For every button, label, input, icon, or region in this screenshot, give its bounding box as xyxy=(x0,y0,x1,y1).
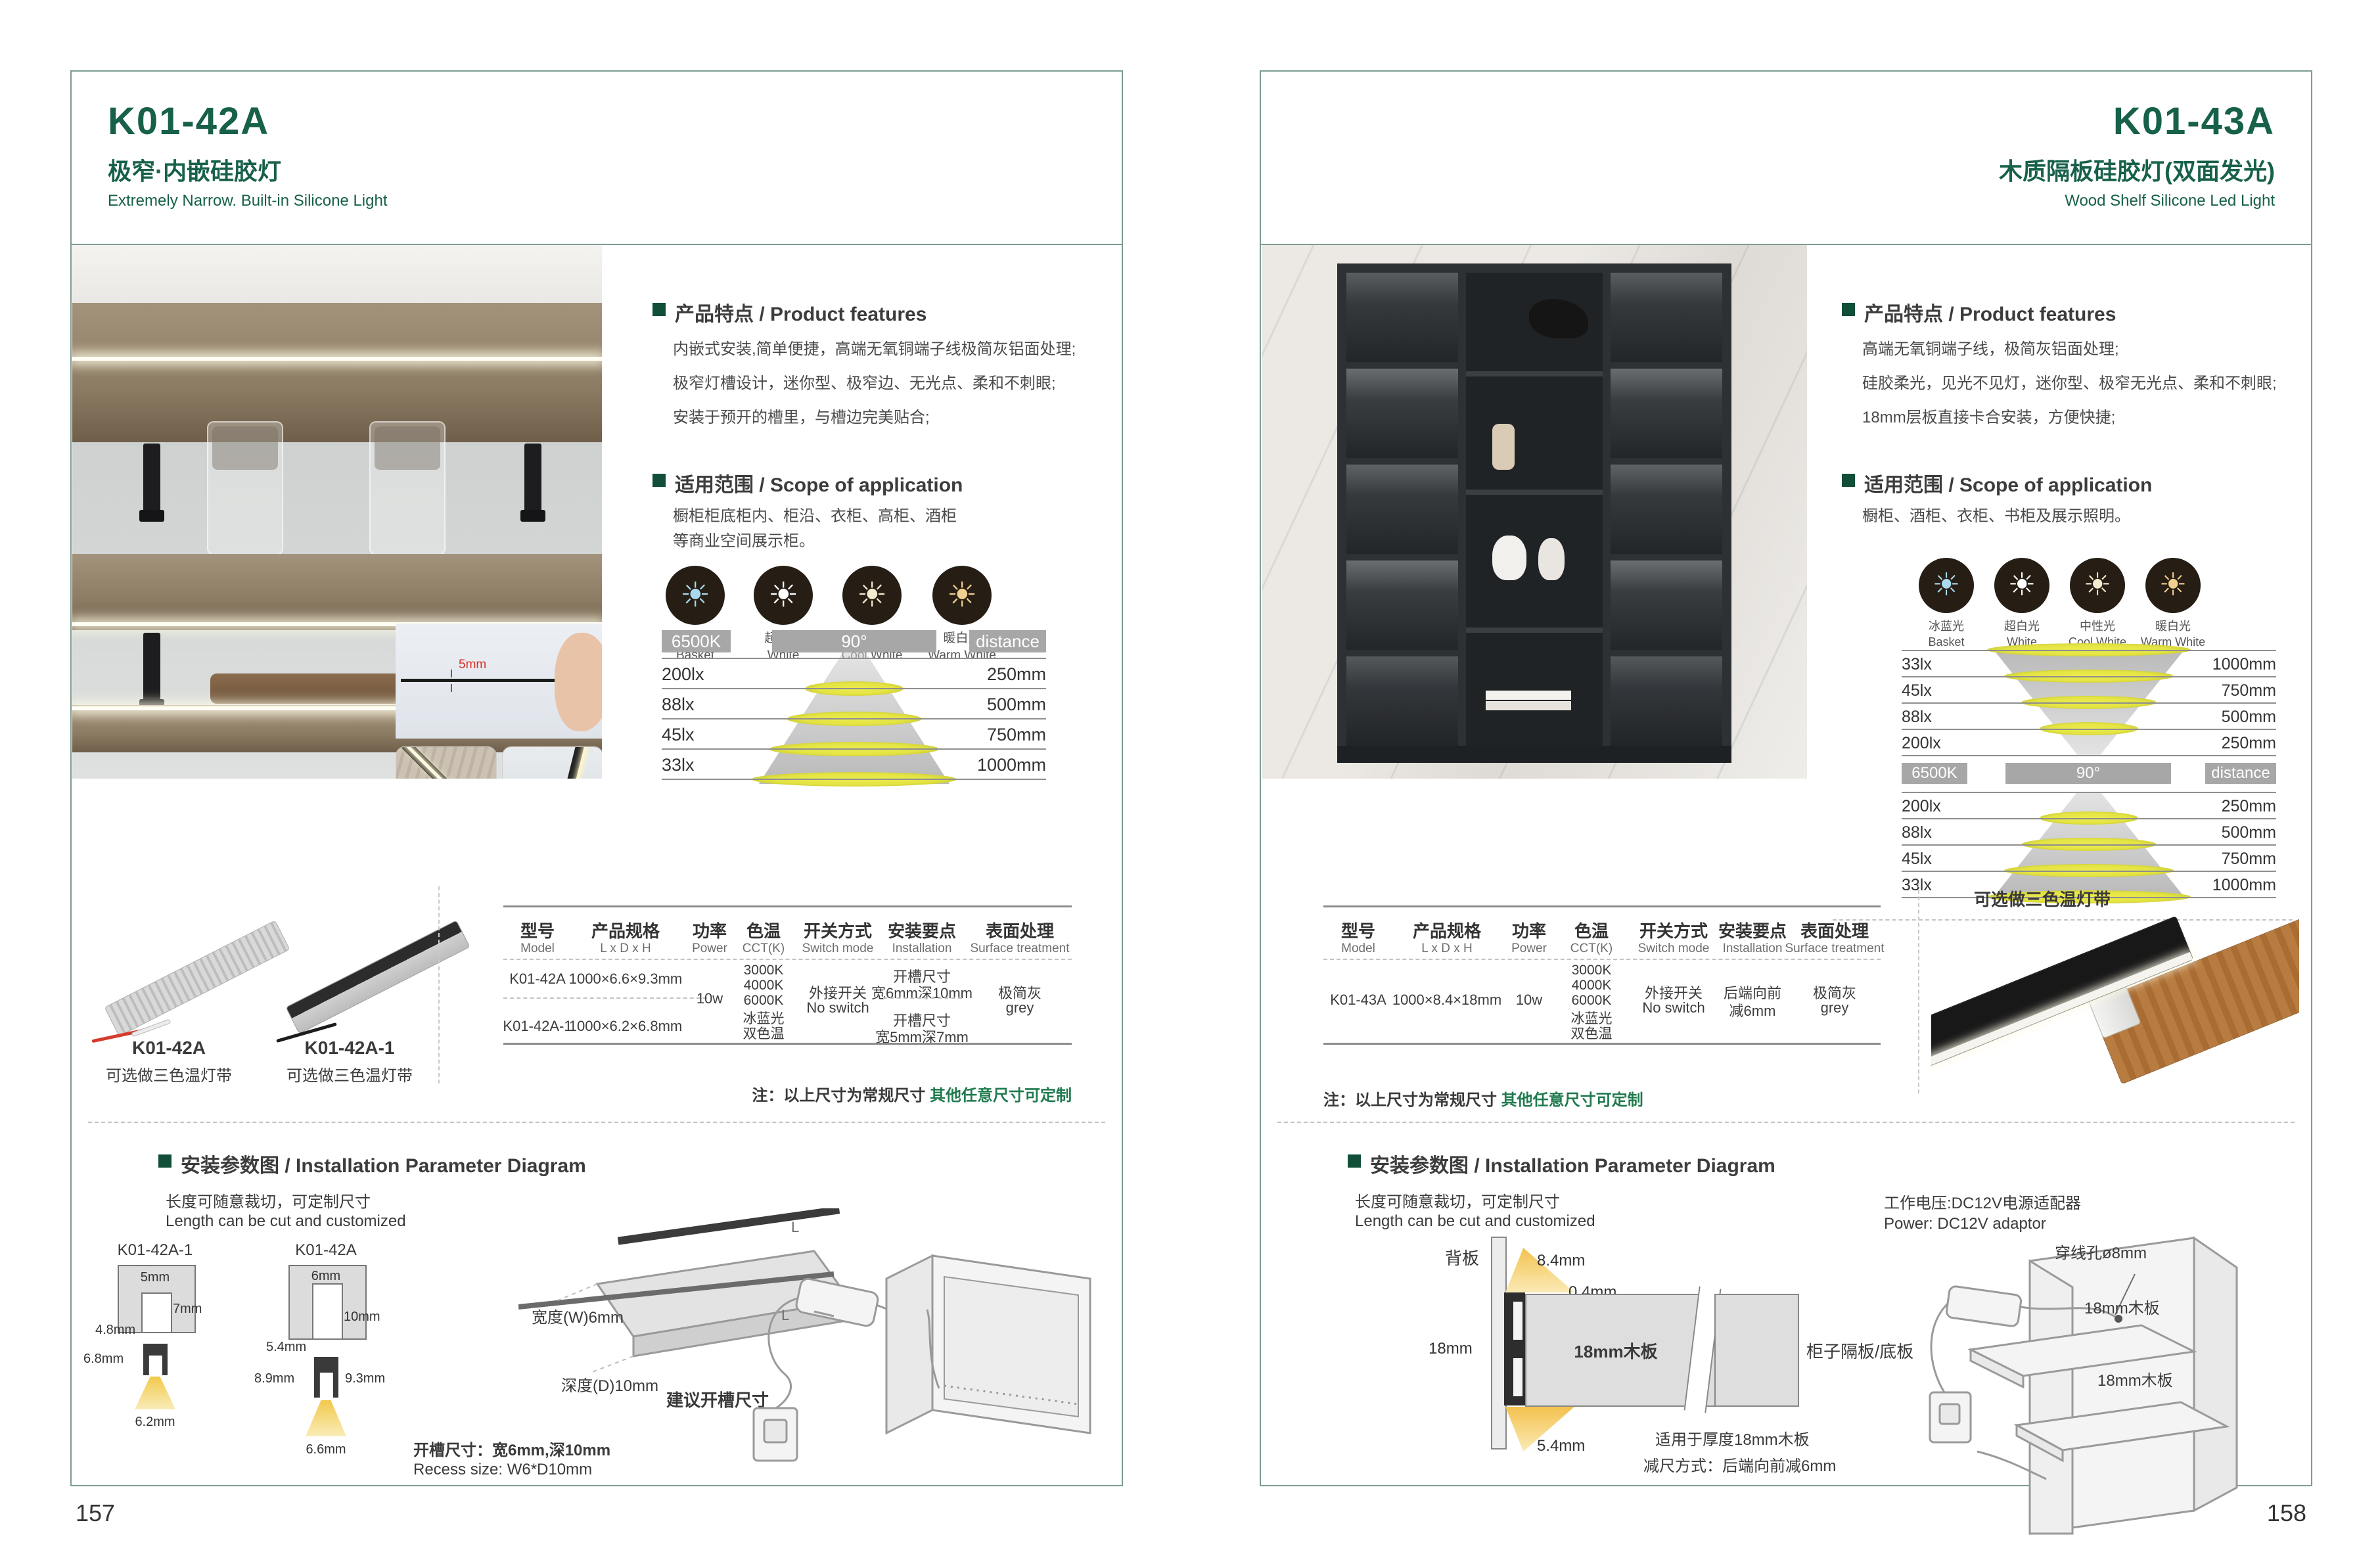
dim-top: 6mm xyxy=(311,1269,340,1284)
cell-cct: 双色温 xyxy=(743,1023,785,1043)
cabinet-middle-column xyxy=(1466,273,1603,746)
dim-bottom: 6.2mm xyxy=(135,1415,175,1430)
diagram-label: K01-42A xyxy=(295,1241,356,1260)
col-header-en: Power xyxy=(692,942,727,956)
install-note-1: 适用于厚度18mm木板 xyxy=(1655,1426,1810,1449)
light-cone-small xyxy=(135,1377,175,1409)
note-prefix: 注：以上尺寸为常规尺寸 xyxy=(752,1087,930,1105)
cell-model: K01-42A xyxy=(509,970,566,988)
cell-install: 宽6mm深10mm xyxy=(871,982,973,1003)
profile-cross-section xyxy=(143,1344,168,1375)
col-header-en: L x D x H xyxy=(1421,942,1472,956)
lux-value: 88lx xyxy=(1902,823,1932,842)
dim-height-right: 9.3mm xyxy=(345,1371,385,1386)
cabinet-right-column xyxy=(1611,273,1722,746)
lux-table-line xyxy=(1902,755,2276,756)
scope-line: 橱柜、酒柜、衣柜、书柜及展示照明。 xyxy=(1862,503,2130,526)
lux-value: 45lx xyxy=(1902,681,1932,700)
sun-icon: ☀ xyxy=(1919,558,1974,613)
page-subtitle-en: Wood Shelf Silicone Led Light xyxy=(1999,192,2275,210)
length-note-cn: 长度可随意裁切，可定制尺寸 xyxy=(1355,1189,1560,1212)
cell-model: K01-42A-1 xyxy=(503,1018,572,1035)
lux-row: 88lx500mm xyxy=(1902,818,2276,846)
lit-cell xyxy=(1611,560,1722,650)
photo-thumb-wood-strip xyxy=(396,746,497,779)
col-header: 开关方式 xyxy=(804,918,872,942)
lux-row: 88lx500mm xyxy=(1902,702,2276,730)
sun-glyph: ☀ xyxy=(2007,570,2036,601)
lux-value: 33lx xyxy=(1902,655,1932,674)
cell-size: 1000×8.4×18mm xyxy=(1392,992,1501,1009)
page-subtitle-cn: 极窄·内嵌硅胶灯 xyxy=(108,152,388,187)
aluminium-profile-graphic xyxy=(285,920,470,1034)
note-highlight: 其他任意尺寸可定制 xyxy=(1501,1091,1643,1109)
wood-board-graphic xyxy=(1714,1294,1799,1407)
cell-cct: 3000K xyxy=(1572,963,1612,978)
col-header-en: Model xyxy=(520,942,555,956)
cct-icon-warm-white: ☀ 暖白光Warm White xyxy=(2137,558,2209,650)
cell-model: K01-43A xyxy=(1330,992,1386,1009)
photo-inset-strip xyxy=(401,679,565,682)
product-desc: 可选做三色温灯带 xyxy=(106,1062,232,1085)
aluminium-profile-graphic xyxy=(104,920,290,1036)
lux-distance-chart-double: 33lx1000mm 45lx750mm 88lx500mm 200lx250m… xyxy=(1902,650,2276,900)
decor-vase xyxy=(1492,424,1515,470)
shelf-divider xyxy=(1466,490,1603,495)
decor-rabbit xyxy=(1492,536,1526,580)
lux-value: 200lx xyxy=(1902,734,1941,753)
hand-graphic xyxy=(555,633,602,731)
distance-value: 750mm xyxy=(2222,681,2276,700)
col-header: 色温 xyxy=(1574,918,1609,942)
lux-row: 45lx750mm xyxy=(1902,844,2276,872)
photo-thumb-hand-profile xyxy=(502,746,602,779)
feature-line: 18mm层板直接卡合安装，方便快捷; xyxy=(1862,404,2115,427)
features-heading: 产品特点 / Product features xyxy=(1864,298,2116,327)
recess-notch xyxy=(141,1292,172,1332)
decor-rabbit xyxy=(1538,538,1565,580)
length-note-cn: 长度可随意裁切，可定制尺寸 xyxy=(166,1189,371,1212)
recess-size-en: Recess size: W6*D10mm xyxy=(413,1461,592,1479)
col-header-en: Surface treatment xyxy=(1785,942,1884,956)
dim-depth: 10mm xyxy=(344,1310,380,1325)
cell-switch: No switch xyxy=(1642,999,1705,1016)
wiring-cabinet-diagram xyxy=(735,1216,1103,1505)
lux-table-bottom-line xyxy=(662,779,1046,780)
catalog-page-right: K01-43A 木质隔板硅胶灯(双面发光) Wood Shelf Silicon… xyxy=(1260,70,2312,1486)
photo-led-strip-1 xyxy=(72,357,602,361)
slab-depth-label: 深度(D)10mm xyxy=(561,1373,658,1396)
cabinet-body xyxy=(1337,263,1731,763)
feature-line: 硅胶柔光，见光不见灯，迷你型、极窄无光点、柔和不刺眼; xyxy=(1862,370,2277,393)
cell-cct: 双色温 xyxy=(1571,1023,1613,1043)
col-header-en: Switch mode xyxy=(1638,942,1710,956)
dim-5-4: 5.4mm xyxy=(1537,1437,1585,1455)
product-name: K01-42A-1 xyxy=(305,1038,395,1059)
section-divider xyxy=(1277,1122,2295,1123)
distance-band: distance xyxy=(969,630,1046,652)
sun-icon: ☀ xyxy=(2145,558,2201,613)
lit-cell xyxy=(1346,465,1458,554)
col-header: 开关方式 xyxy=(1639,918,1708,942)
profile-cross-section xyxy=(1504,1292,1525,1405)
lux-value: 45lx xyxy=(1902,850,1932,869)
profile-slot xyxy=(1513,1358,1522,1396)
lux-value: 200lx xyxy=(662,664,704,685)
col-header-en: CCT(K) xyxy=(1570,942,1613,956)
shelf-board-label-2: 18mm木板 xyxy=(2097,1367,2173,1390)
product-desc: 可选做三色温灯带 xyxy=(286,1062,413,1085)
sun-glyph: ☀ xyxy=(2159,570,2187,601)
photo-container xyxy=(369,421,446,555)
shelf-board-label-1: 18mm木板 xyxy=(2084,1295,2160,1318)
row-divider xyxy=(503,997,707,999)
lit-cell xyxy=(1346,369,1458,458)
lux-row: 33lx1000mm xyxy=(662,748,1046,780)
diagram-label: K01-42A-1 xyxy=(118,1241,193,1260)
shelf-divider xyxy=(1466,371,1603,377)
dim-18: 18mm xyxy=(1429,1340,1473,1358)
lux-row: 88lx500mm xyxy=(662,688,1046,719)
photo-shelf-2 xyxy=(72,554,602,630)
feature-line: 高端无氧铜端子线，极简灰铝面处理; xyxy=(1862,336,2119,359)
col-header: 型号 xyxy=(520,918,555,942)
feature-line: 内嵌式安装,简单便捷，高端无氧铜端子线极简灰铝面处理; xyxy=(673,336,1076,359)
lit-cell xyxy=(1346,560,1458,650)
dim-top: 5mm xyxy=(141,1270,170,1285)
decor-books xyxy=(1486,691,1571,700)
col-header: 安装要点 xyxy=(888,918,956,942)
install-heading: 安装参数图 / Installation Parameter Diagram xyxy=(1370,1149,1775,1178)
slab-width-label: 宽度(W)6mm xyxy=(532,1304,624,1327)
length-note-en: Length can be cut and customized xyxy=(166,1212,406,1231)
cct-label-en: Basket xyxy=(1928,635,1964,649)
distance-value: 250mm xyxy=(987,664,1046,685)
cell-power: 10w xyxy=(697,990,723,1007)
distance-value: 1000mm xyxy=(977,755,1046,775)
table-note: 注：以上尺寸为常规尺寸 其他任意尺寸可定制 xyxy=(663,1082,1072,1105)
sun-glyph: ☀ xyxy=(680,578,711,612)
recess-notch xyxy=(312,1283,343,1338)
table-top-line xyxy=(503,905,1072,907)
distance-value: 1000mm xyxy=(2212,876,2276,895)
product-name: K01-42A xyxy=(132,1038,206,1059)
lux-distance-chart: 6500K 90° distance 200lx250mm 88lx500mm … xyxy=(662,630,1046,784)
scope-heading: 适用范围 / Scope of application xyxy=(675,468,963,497)
cell-surface: grey xyxy=(1821,999,1849,1016)
cell-size: 1000×6.6×9.3mm xyxy=(569,970,682,988)
lux-value: 200lx xyxy=(1902,797,1941,816)
install-note-2: 减尺方式：后端向前减6mm xyxy=(1643,1453,1836,1476)
cell-size: 1000×6.2×6.8mm xyxy=(569,1018,682,1035)
sun-icon: ☀ xyxy=(932,566,992,625)
col-header: 产品规格 xyxy=(1413,918,1481,942)
table-header-divider xyxy=(503,959,1072,960)
page-title: K01-42A xyxy=(108,99,388,143)
dim-arrow xyxy=(451,684,452,692)
kelvin-band: 6500K xyxy=(662,630,731,652)
product-photo-shelves: 5mm xyxy=(72,245,602,779)
photo-inset-5mm: 5mm xyxy=(396,624,602,739)
cell-cct: 4000K xyxy=(744,978,784,993)
lux-value: 45lx xyxy=(662,725,695,745)
lux-row: 33lx1000mm xyxy=(1902,650,2276,677)
cell-surface: grey xyxy=(1006,999,1034,1016)
lux-value: 88lx xyxy=(1902,708,1932,727)
cct-label-cn: 冰蓝光 xyxy=(1929,620,1964,633)
length-note-en: Length can be cut and customized xyxy=(1355,1212,1595,1231)
table-top-line xyxy=(1323,905,1881,907)
table-header-divider xyxy=(1323,959,1881,960)
cabinet-plinth xyxy=(1337,746,1731,763)
page-subtitle-cn: 木质隔板硅胶灯(双面发光) xyxy=(1999,152,2275,187)
lit-cell xyxy=(1611,369,1722,458)
distance-value: 500mm xyxy=(2222,823,2276,842)
cct-label-cn: 暖白光 xyxy=(2155,620,2191,633)
features-heading: 产品特点 / Product features xyxy=(675,298,927,327)
lux-value: 33lx xyxy=(662,755,695,775)
dim-height-left: 8.9mm xyxy=(254,1371,294,1386)
col-header: 型号 xyxy=(1341,918,1375,942)
section-vertical-divider xyxy=(438,886,440,1084)
cabinet-left-column xyxy=(1346,273,1458,746)
col-header-en: Power xyxy=(1511,942,1547,956)
col-header-en: Model xyxy=(1341,942,1375,956)
lit-cell xyxy=(1611,273,1722,362)
angle-band: 90° xyxy=(2005,763,2171,784)
photo-container xyxy=(207,421,283,555)
col-header-en: L x D x H xyxy=(600,942,651,956)
col-header: 产品规格 xyxy=(591,918,660,942)
section-bullet xyxy=(652,303,666,316)
distance-value: 250mm xyxy=(2222,797,2276,816)
cell-cct: 6000K xyxy=(1572,993,1612,1009)
page-subtitle-en: Extremely Narrow. Built-in Silicone Ligh… xyxy=(108,192,388,210)
col-header: 表面处理 xyxy=(1800,918,1869,942)
dim-depth: 7mm xyxy=(173,1302,202,1317)
col-header: 功率 xyxy=(693,918,727,942)
photo-ceiling xyxy=(72,245,602,305)
page-header-right: K01-43A 木质隔板硅胶灯(双面发光) Wood Shelf Silicon… xyxy=(1261,72,2311,245)
light-cone-small xyxy=(306,1400,346,1436)
distance-value: 1000mm xyxy=(2212,655,2276,674)
lux-value: 88lx xyxy=(662,695,695,715)
cell-switch: No switch xyxy=(806,999,869,1016)
feature-line: 安装于预开的槽里，与槽边完美贴合; xyxy=(673,404,930,427)
lit-cell xyxy=(1346,273,1458,362)
lit-cell xyxy=(1611,465,1722,554)
sun-icon: ☀ xyxy=(1994,558,2049,613)
photo-bracket xyxy=(143,633,160,708)
shelf-divider xyxy=(1466,628,1603,633)
distance-value: 500mm xyxy=(2222,708,2276,727)
cct-icon-ice-blue: ☀ 冰蓝光Basket xyxy=(1910,558,1982,650)
photo-bracket xyxy=(143,444,160,519)
distance-band: distance xyxy=(2205,763,2276,784)
page-number-right: 158 xyxy=(2228,1499,2306,1527)
sun-icon: ☀ xyxy=(666,566,725,625)
section-divider xyxy=(88,1122,1105,1123)
dim-8-4: 8.4mm xyxy=(1537,1252,1585,1270)
distance-value: 750mm xyxy=(2222,850,2276,869)
table-bottom-line xyxy=(503,1043,1072,1045)
wire-hole-label: 穿线孔ø8mm xyxy=(2055,1240,2147,1263)
cell-power: 10w xyxy=(1516,992,1542,1009)
photo-bracket xyxy=(524,444,541,519)
inset-dim-label: 5mm xyxy=(459,658,486,672)
row-divider xyxy=(883,997,962,999)
lux-row: 45lx750mm xyxy=(1902,676,2276,704)
photo-shelf-1 xyxy=(72,303,602,442)
section-bullet xyxy=(652,474,666,487)
kelvin-band: 6500K xyxy=(1902,763,1967,784)
cct-label-cn: 超白光 xyxy=(2004,620,2040,633)
col-header-en: CCT(K) xyxy=(743,942,785,956)
note-prefix: 注：以上尺寸为常规尺寸 xyxy=(1323,1091,1501,1109)
scope-line: 等商业空间展示柜。 xyxy=(673,528,815,551)
table-bottom-line xyxy=(1323,1043,1881,1045)
lux-row: 200lx250mm xyxy=(1902,792,2276,819)
sun-glyph: ☀ xyxy=(768,578,799,612)
col-header: 功率 xyxy=(1512,918,1546,942)
sun-icon: ☀ xyxy=(2070,558,2125,613)
distance-value: 250mm xyxy=(2222,734,2276,753)
section-bullet xyxy=(1842,474,1855,487)
cell-cct: 3000K xyxy=(744,963,784,978)
lux-value: 33lx xyxy=(1902,876,1932,895)
decor-sculpture xyxy=(1529,299,1588,338)
sun-glyph: ☀ xyxy=(947,578,978,612)
col-header-en: Surface treatment xyxy=(970,942,1069,956)
angle-band: 90° xyxy=(772,630,936,652)
page-header-left: K01-42A 极窄·内嵌硅胶灯 Extremely Narrow. Built… xyxy=(72,72,1122,245)
dim-arrow xyxy=(451,670,452,677)
shelf-cabinet-diagram xyxy=(1918,1175,2299,1543)
product-image-k01-42a-1 xyxy=(288,900,453,1051)
lux-row: 200lx250mm xyxy=(1902,729,2276,756)
cell-cct: 6000K xyxy=(744,993,784,1009)
dim-height: 6.8mm xyxy=(83,1352,124,1367)
lit-cell xyxy=(1611,656,1722,746)
scope-line: 橱柜柜底柜内、柜沿、衣柜、高柜、酒柜 xyxy=(673,503,957,526)
profile-cross-section xyxy=(314,1357,338,1398)
section-vertical-divider xyxy=(1918,883,1919,1093)
section-bullet xyxy=(158,1154,172,1168)
lit-cell xyxy=(1346,656,1458,746)
col-header: 表面处理 xyxy=(986,918,1054,942)
back-panel-label: 背板 xyxy=(1445,1245,1479,1269)
note-highlight: 其他任意尺寸可定制 xyxy=(930,1087,1072,1105)
dim-inner: 5.4mm xyxy=(266,1340,306,1355)
cct-icon-white: ☀ 超白光White xyxy=(1986,558,2058,650)
distance-value: 500mm xyxy=(987,695,1046,715)
section-bullet xyxy=(1842,303,1855,316)
dim-inner: 4.8mm xyxy=(95,1323,135,1338)
product-photo-cabinet xyxy=(1262,245,1807,779)
lux-row: 45lx750mm xyxy=(662,718,1046,750)
distance-value: 750mm xyxy=(987,725,1046,745)
col-header-en: Switch mode xyxy=(802,942,874,956)
sun-icon: ☀ xyxy=(842,566,902,625)
lux-row: 200lx250mm xyxy=(662,658,1046,689)
col-header: 色温 xyxy=(746,918,781,942)
profile-slot xyxy=(1513,1302,1522,1340)
decor-books xyxy=(1486,701,1571,710)
shelf-bottom-label: 柜子隔板/底板 xyxy=(1806,1338,1913,1363)
page-number-left: 157 xyxy=(76,1499,115,1527)
sun-glyph: ☀ xyxy=(857,578,888,612)
thumb-bg xyxy=(503,747,602,779)
sun-glyph: ☀ xyxy=(2083,570,2111,601)
section-bullet xyxy=(1348,1154,1361,1168)
dim-bottom: 6.6mm xyxy=(306,1442,346,1457)
product-option-label: 可选做三色温灯带 xyxy=(1974,886,2111,911)
col-header-en: Installation xyxy=(892,942,952,956)
product-image-k01-43a xyxy=(1931,909,2299,1107)
col-header: 安装要点 xyxy=(1718,918,1787,942)
catalog-page-left: K01-42A 极窄·内嵌硅胶灯 Extremely Narrow. Built… xyxy=(70,70,1123,1486)
install-heading: 安装参数图 / Installation Parameter Diagram xyxy=(181,1149,586,1178)
feature-line: 极窄灯槽设计，迷你型、极窄边、无光点、柔和不刺眼; xyxy=(673,370,1056,393)
col-header-en: Installation xyxy=(1723,942,1783,956)
cell-install: 减6mm xyxy=(1729,999,1776,1020)
scope-heading: 适用范围 / Scope of application xyxy=(1864,468,2152,497)
cell-cct: 4000K xyxy=(1572,978,1612,993)
board-label: 18mm木板 xyxy=(1574,1338,1657,1363)
sun-icon: ☀ xyxy=(754,566,813,625)
cct-icon-cool-white: ☀ 中性光Cool White xyxy=(2061,558,2134,650)
page-title: K01-43A xyxy=(1999,99,2275,143)
table-note: 注：以上尺寸为常规尺寸 其他任意尺寸可定制 xyxy=(1323,1087,1643,1110)
sun-glyph: ☀ xyxy=(1932,570,1960,601)
product-image-k01-42a xyxy=(111,900,275,1051)
recess-size-cn: 开槽尺寸：宽6mm,深10mm xyxy=(413,1437,610,1460)
cct-label-cn: 中性光 xyxy=(2080,620,2115,633)
